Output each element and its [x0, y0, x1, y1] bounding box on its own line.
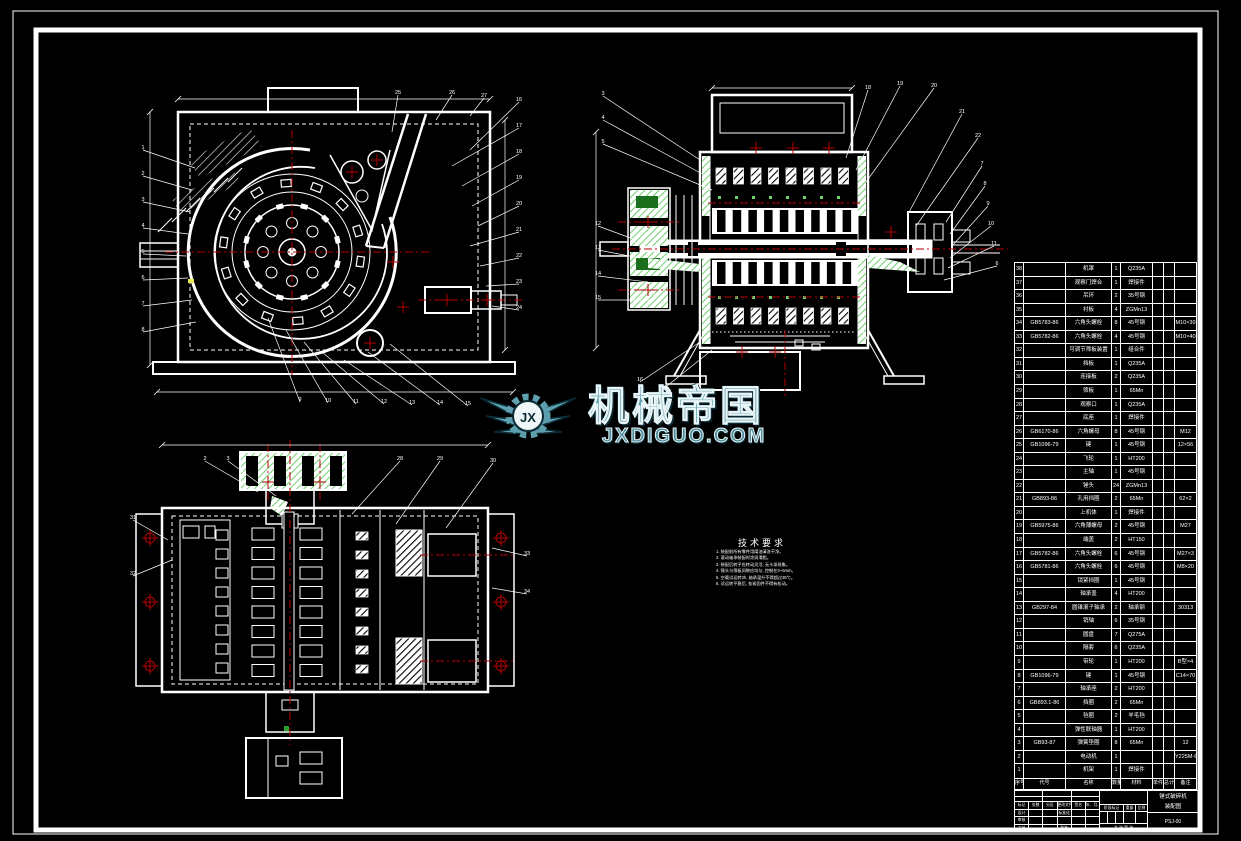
- table-row: 10隔套6Q235A: [1015, 642, 1196, 656]
- table-row: 4弹性联轴器1HT200: [1015, 724, 1196, 738]
- table-row: 31挡板1Q235A: [1015, 358, 1196, 372]
- balloon-number: 4: [601, 115, 604, 121]
- balloon-number: 25: [395, 90, 401, 96]
- balloon-number: 6: [995, 261, 998, 267]
- balloon-number: 15: [595, 295, 601, 301]
- balloon-number: 9: [986, 201, 989, 207]
- table-row: 14轴承盖4HT200: [1015, 588, 1196, 602]
- col-header-no: 序号: [1015, 779, 1024, 789]
- table-row: 32可调节筛板装置1组合件: [1015, 344, 1196, 358]
- table-row: 20上机体1焊接件: [1015, 507, 1196, 521]
- balloon-number: 22: [516, 253, 522, 259]
- table-row: 8GB1096-79键145号钢C14×70: [1015, 670, 1196, 684]
- table-row: 15锁紧挡圈145号钢: [1015, 575, 1196, 589]
- balloon-number: 19: [516, 175, 522, 181]
- weight-label: 重量: [1124, 805, 1136, 811]
- balloon-number: 3: [226, 456, 229, 462]
- top-view: [136, 452, 514, 798]
- balloon-number: 13: [409, 400, 415, 406]
- cad-screenshot: 1234567891011121314151617181920212223242…: [0, 0, 1241, 841]
- tech-req-title: 技术要求: [716, 536, 808, 549]
- balloon-number: 11: [353, 399, 359, 405]
- table-row: 1机架1焊接件: [1015, 764, 1196, 778]
- parts-table-header: 序号 代号 名称 数量 材料 单件 总计 备注: [1014, 779, 1197, 790]
- side-view: [600, 95, 1000, 390]
- table-row: 18端盖2HT150: [1015, 534, 1196, 548]
- scale-label: 比例: [1136, 805, 1147, 811]
- table-row: 21GB893-86孔用挡圈265Mn62×2: [1015, 493, 1196, 507]
- balloon-number: 21: [959, 109, 965, 115]
- balloon-number: 16: [637, 377, 643, 383]
- balloon-number: 17: [659, 385, 665, 391]
- balloon-number: 29: [437, 456, 443, 462]
- table-row: 23主轴145号钢: [1015, 466, 1196, 480]
- balloon-number: 12: [381, 399, 387, 405]
- table-row: 16GB5781-86六角头螺栓645号钢M8×20: [1015, 561, 1196, 575]
- table-row: 22锤头24ZGMn13: [1015, 480, 1196, 494]
- balloon-number: 8: [141, 327, 144, 333]
- table-row: 35衬板4ZGMn13: [1015, 304, 1196, 318]
- table-row: 33GB5782-86六角头螺栓445号钢M10×40: [1015, 331, 1196, 345]
- balloon-number: 14: [595, 271, 601, 277]
- balloon-number: 5: [141, 249, 144, 255]
- balloon-number: 2: [141, 171, 144, 177]
- balloon-number: 13: [595, 245, 601, 251]
- table-row: 19GB5975-86六角薄螺母245号钢M27: [1015, 520, 1196, 534]
- table-row: 30连接板2Q235A: [1015, 371, 1196, 385]
- table-row: 12销轴635号钢: [1015, 615, 1196, 629]
- balloon-number: 9: [298, 397, 301, 403]
- sheet-count: 共 张 第 张: [1100, 824, 1147, 831]
- balloon-number: 34: [524, 589, 530, 595]
- table-row: 24飞轮1HT200: [1015, 453, 1196, 467]
- drawing-title: 锤式破碎机 装配图: [1148, 791, 1198, 813]
- balloon-number: 28: [397, 456, 403, 462]
- table-row: 17GB5782-86六角头螺栓645号钢M27×3: [1015, 548, 1196, 562]
- table-row: 27底座1焊接件: [1015, 412, 1196, 426]
- table-row: 29筛板165Mn: [1015, 385, 1196, 399]
- balloon-number: 23: [516, 279, 522, 285]
- balloon-number: 11: [991, 241, 997, 247]
- balloon-number: 7: [980, 161, 983, 167]
- balloon-number: 18: [865, 85, 871, 91]
- balloon-number: 1: [141, 145, 144, 151]
- technical-requirements: 技术要求 1. 装配前所有零件用煤油清洗干净。2. 滚动轴承装配时涂润滑脂。3.…: [716, 536, 836, 587]
- balloon-number: 22: [975, 133, 981, 139]
- col-header-name: 名称: [1066, 779, 1112, 789]
- parts-table: 38机罩1Q235A37观察门焊合1焊接件36吊环235号钢35衬板4ZGMn1…: [1014, 262, 1197, 779]
- balloon-number: 3: [601, 91, 604, 97]
- table-row: 36吊环235号钢: [1015, 290, 1196, 304]
- balloon-number: 27: [481, 93, 487, 99]
- table-row: 25GB1096-79键145号钢12×56: [1015, 439, 1196, 453]
- balloon-number: 33: [524, 551, 530, 557]
- balloon-number: 10: [325, 398, 331, 404]
- table-row: 5毡圈2羊毛毡: [1015, 710, 1196, 724]
- balloon-number: 31: [130, 515, 136, 521]
- table-row: 13GB297-84圆锥滚子轴承2轴承钢30313: [1015, 602, 1196, 616]
- balloon-number: 17: [516, 123, 522, 129]
- table-row: 9带轮1HT200B型×4: [1015, 656, 1196, 670]
- balloon-number: 12: [595, 221, 601, 227]
- table-row: 28观察口1Q235A: [1015, 399, 1196, 413]
- title-block: 标记处数分区更改文件号签名年、月、日设计标准化审核工艺批准 阶段标记 重量 比例…: [1014, 790, 1199, 832]
- table-row: 11圆盘7Q275A: [1015, 629, 1196, 643]
- col-header-unit: 单件: [1153, 779, 1164, 789]
- balloon-number: 15: [465, 401, 471, 407]
- balloon-number: 24: [516, 305, 522, 311]
- table-row: 37观察门焊合1焊接件: [1015, 277, 1196, 291]
- front-view: [140, 88, 517, 374]
- balloon-number: 32: [130, 571, 136, 577]
- balloon-number: 6: [141, 275, 144, 281]
- balloon-number: 7: [141, 301, 144, 307]
- table-row: 6GB893.1-86挡圈265Mn: [1015, 697, 1196, 711]
- stage-label: 阶段标记: [1100, 805, 1124, 811]
- balloon-number: 8: [983, 181, 986, 187]
- balloon-number: 10: [988, 221, 994, 227]
- balloon-number: 5: [601, 139, 604, 145]
- balloon-number: 2: [203, 456, 206, 462]
- table-row: 2电动机1Y225M-6: [1015, 751, 1196, 765]
- table-row: 34GB5783-86六角头螺栓845号钢M10×30: [1015, 317, 1196, 331]
- col-header-code: 代号: [1024, 779, 1066, 789]
- balloon-number: 18: [516, 149, 522, 155]
- table-row: 26GB6170-86六角螺母845号钢M12: [1015, 426, 1196, 440]
- col-header-qty: 数量: [1112, 779, 1121, 789]
- tech-req-line: 6. 试运转平稳后, 各紧固件不得有松动。: [716, 581, 836, 587]
- balloon-number: 19: [897, 81, 903, 87]
- col-header-remark: 备注: [1175, 779, 1196, 789]
- balloon-number: 3: [141, 197, 144, 203]
- table-row: 7轴承座2HT200: [1015, 683, 1196, 697]
- col-header-total: 总计: [1164, 779, 1175, 789]
- balloon-number: 4: [141, 223, 144, 229]
- balloon-number: 20: [516, 201, 522, 207]
- balloon-number: 20: [931, 83, 937, 89]
- col-header-material: 材料: [1121, 779, 1153, 789]
- balloon-number: 21: [516, 227, 522, 233]
- balloon-number: 30: [490, 458, 496, 464]
- balloon-number: 16: [516, 97, 522, 103]
- balloon-number: 26: [449, 90, 455, 96]
- table-row: 38机罩1Q235A: [1015, 263, 1196, 277]
- table-row: 3GB93-87弹簧垫圈865Mn12: [1015, 737, 1196, 751]
- balloon-number: 14: [437, 400, 443, 406]
- drawing-code: PSJ-00: [1148, 813, 1198, 831]
